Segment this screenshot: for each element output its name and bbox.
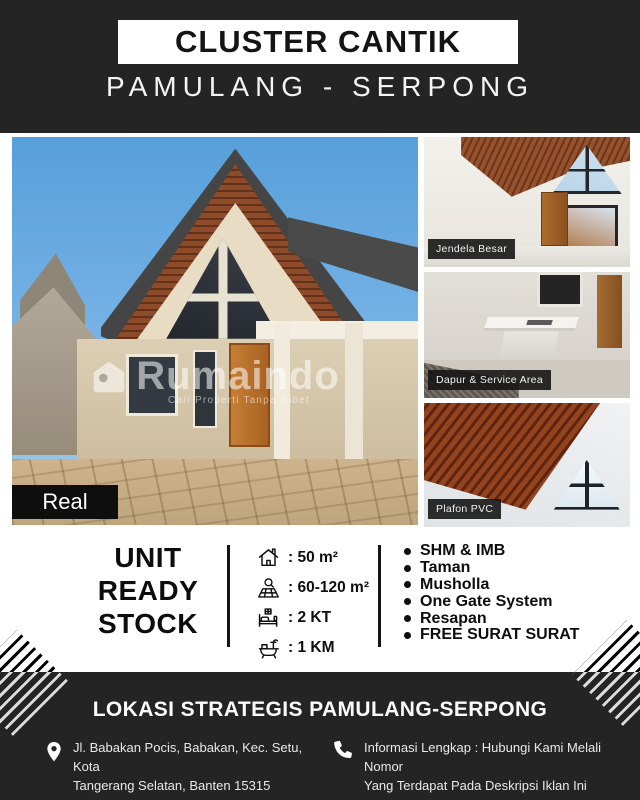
photo-label: Plafon PVC: [428, 499, 501, 519]
footer-band: LOKASI STRATEGIS PAMULANG-SERPONG Jl. Ba…: [0, 672, 640, 800]
ceiling-photo: Plafon PVC: [424, 403, 630, 527]
headline-line: READY: [87, 574, 209, 607]
bullet-dot: [404, 548, 411, 555]
title-box: CLUSTER CANTIK: [118, 20, 518, 64]
land-area-icon: [255, 575, 282, 601]
real-badge: Real: [12, 485, 118, 519]
headline-line: STOCK: [87, 607, 209, 640]
feature-item: SHM & IMB: [404, 543, 579, 560]
bullet-dot: [404, 581, 411, 588]
info-text: Informasi Lengkap : Hubungi Kami Melali …: [364, 738, 612, 796]
photo-label: Jendela Besar: [428, 239, 515, 259]
spec-value: : 2 KT: [288, 609, 331, 627]
spec-row-bedrooms: : 2 KT: [255, 603, 369, 633]
spec-row-building-area: : 50 m²: [255, 543, 369, 573]
spec-value: : 1 KM: [288, 639, 335, 657]
front-window-narrow: [193, 350, 217, 428]
front-door: [229, 343, 270, 448]
page-subtitle: PAMULANG - SERPONG: [0, 71, 640, 103]
tall-window: [564, 205, 618, 252]
feature-item: Taman: [404, 560, 579, 577]
spec-row-bathrooms: : 1 KM: [255, 633, 369, 663]
kitchen-window: [537, 272, 582, 307]
spec-row-land-area: : 60-120 m²: [255, 573, 369, 603]
feature-item: One Gate System: [404, 593, 579, 610]
photo-label: Dapur & Service Area: [428, 370, 551, 390]
spec-value: : 60-120 m²: [288, 579, 369, 597]
address-block: Jl. Babakan Pocis, Babakan, Kec. Setu, K…: [46, 738, 314, 796]
bed-icon: [255, 605, 282, 631]
counter-base: [499, 329, 558, 362]
location-pin-icon: [46, 740, 62, 764]
address-text: Jl. Babakan Pocis, Babakan, Kec. Setu, K…: [73, 738, 314, 796]
spec-value: : 50 m²: [288, 549, 338, 567]
porch-pillar: [274, 323, 290, 459]
interior-photo-window: Jendela Besar: [424, 137, 630, 267]
phone-icon: [332, 740, 353, 761]
info-block: Informasi Lengkap : Hubungi Kami Melali …: [332, 738, 612, 796]
divider: [227, 545, 230, 647]
contact-section: Jl. Babakan Pocis, Babakan, Kec. Setu, K…: [0, 738, 640, 796]
bullet-dot: [404, 598, 411, 605]
kitchen-sink: [526, 320, 552, 325]
feature-item: FREE SURAT SURAT: [404, 627, 579, 644]
header-band: CLUSTER CANTIK PAMULANG - SERPONG: [0, 0, 640, 133]
wood-door: [541, 192, 568, 247]
page-title: CLUSTER CANTIK: [175, 24, 461, 60]
bullet-dot: [404, 632, 411, 639]
availability-headline: UNIT READY STOCK: [87, 541, 209, 640]
house-area-icon: [255, 545, 282, 571]
porch-pillar: [345, 323, 363, 459]
bath-icon: [255, 635, 282, 661]
main-house-photo: Rumaindo Cari Properti Tanpa Ribet Real: [12, 137, 418, 525]
property-flyer: CLUSTER CANTIK PAMULANG - SERPONG Rumain…: [0, 0, 640, 800]
bullet-dot: [404, 565, 411, 572]
headline-line: UNIT: [87, 541, 209, 574]
bullet-dot: [404, 615, 411, 622]
location-headline: LOKASI STRATEGIS PAMULANG-SERPONG: [0, 698, 640, 722]
front-window: [126, 354, 179, 416]
kitchen-photo: Dapur & Service Area: [424, 272, 630, 398]
divider: [378, 545, 381, 647]
feature-item: Musholla: [404, 577, 579, 594]
kitchen-door: [597, 275, 622, 348]
spec-list: : 50 m² : 60-120 m² : 2 KT : 1 KM: [255, 543, 369, 663]
feature-item: Resapan: [404, 610, 579, 627]
feature-list: SHM & IMB Taman Musholla One Gate System…: [404, 543, 579, 644]
